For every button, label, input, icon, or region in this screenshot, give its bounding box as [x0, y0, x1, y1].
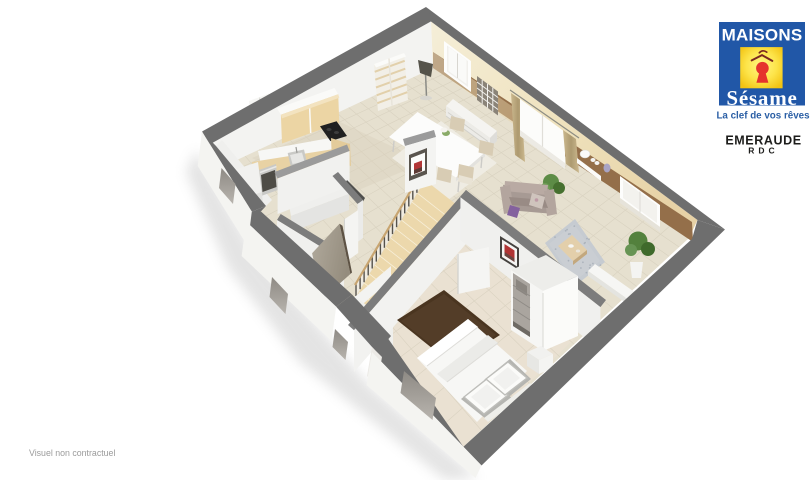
svg-text:Sésame: Sésame — [726, 86, 797, 110]
svg-text:Visuel non contractuel: Visuel non contractuel — [29, 448, 115, 458]
svg-text:MAISONS: MAISONS — [722, 26, 803, 45]
svg-text:RDC: RDC — [748, 146, 778, 156]
svg-text:La clef de vos rêves: La clef de vos rêves — [716, 111, 810, 122]
